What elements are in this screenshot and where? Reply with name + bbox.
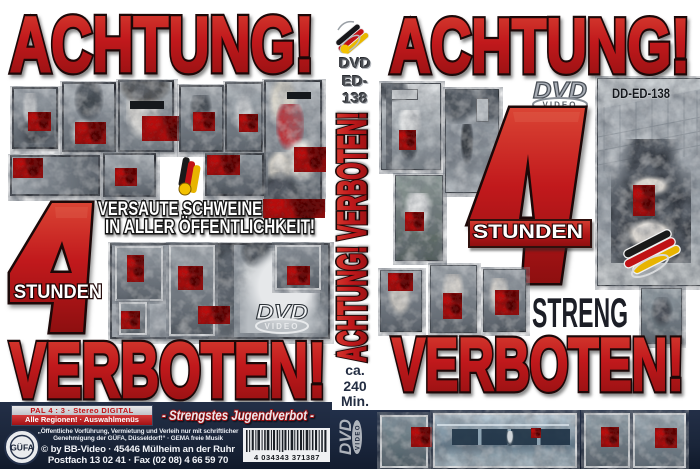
svg-text:ACHTUNG!: ACHTUNG! bbox=[10, 0, 314, 88]
svg-text:VERBOTEN!: VERBOTEN! bbox=[10, 326, 326, 414]
svg-text:IN ALLER ÖFFENTLICHKEIT!: IN ALLER ÖFFENTLICHKEIT! bbox=[105, 217, 315, 238]
svg-text:DD-ED-138: DD-ED-138 bbox=[612, 85, 670, 101]
svg-text:VIDEO: VIDEO bbox=[356, 424, 362, 450]
svg-text:- Strengstes Jugendverbot -: - Strengstes Jugendverbot - bbox=[162, 407, 314, 423]
svg-text:GÜFA: GÜFA bbox=[10, 443, 34, 453]
svg-text:VERBOTEN!: VERBOTEN! bbox=[392, 323, 684, 406]
svg-text:STUNDEN: STUNDEN bbox=[473, 222, 583, 243]
svg-text:STUNDEN: STUNDEN bbox=[14, 282, 102, 303]
svg-text:ACHTUNG! VERBOTEN!: ACHTUNG! VERBOTEN! bbox=[331, 112, 375, 362]
